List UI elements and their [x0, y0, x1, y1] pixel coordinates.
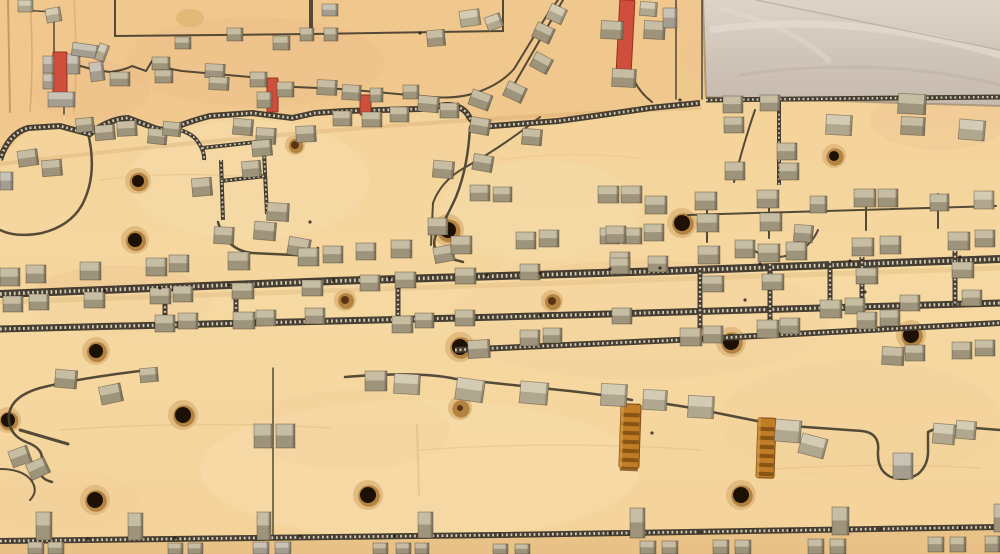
block-top-face — [735, 240, 755, 249]
ejection-block — [415, 313, 434, 328]
block-front-face — [780, 325, 800, 334]
block-top-face — [723, 96, 743, 104]
block-front-face — [962, 297, 982, 306]
ejection-block — [698, 246, 720, 264]
debris-speck — [418, 31, 421, 34]
ejection-block — [601, 20, 624, 39]
block-front-face — [950, 543, 966, 552]
ejection-block — [468, 339, 491, 358]
block-front-face — [470, 192, 490, 201]
block-front-face — [857, 319, 877, 329]
ejection-block — [152, 57, 170, 70]
block-top-face — [882, 346, 904, 356]
hole-center — [548, 297, 556, 305]
ejection-block — [757, 320, 779, 338]
block-top-face — [415, 313, 434, 320]
block-top-face — [440, 103, 459, 110]
ejection-block — [687, 395, 714, 418]
corrugated-rubber-strip — [756, 418, 776, 479]
debris-speck — [331, 278, 334, 281]
block-front-face — [606, 233, 626, 243]
block-front-face — [539, 237, 559, 247]
block-front-face — [276, 434, 295, 448]
block-top-face — [365, 371, 387, 381]
hole-center — [89, 344, 103, 358]
block-front-face — [493, 193, 512, 202]
block-front-face — [543, 334, 562, 343]
ejection-block — [952, 342, 972, 359]
ejection-block — [958, 119, 986, 141]
block-top-face — [232, 283, 254, 291]
block-front-face — [735, 546, 751, 554]
ejection-block — [302, 280, 323, 296]
ejection-block — [48, 542, 64, 554]
block-front-face — [724, 124, 744, 133]
block-top-face — [276, 424, 295, 436]
block-top-face — [391, 240, 412, 249]
block-top-face — [644, 224, 664, 232]
debris-speck — [173, 536, 176, 539]
block-front-face — [520, 337, 540, 346]
ejection-block — [975, 230, 995, 247]
block-top-face — [857, 312, 877, 320]
block-top-face — [680, 328, 702, 337]
block-top-face — [878, 189, 898, 198]
ejection-block — [0, 268, 20, 286]
block-top-face — [451, 236, 472, 245]
block-top-face — [901, 116, 925, 126]
ejection-block — [417, 95, 439, 113]
debris-speck — [538, 313, 541, 316]
block-top-face — [698, 246, 720, 255]
block-front-face — [360, 282, 380, 291]
block-top-face — [713, 540, 729, 547]
block-front-face — [695, 200, 717, 210]
block-top-face — [455, 268, 476, 276]
block-front-face — [415, 319, 434, 328]
ejection-block — [994, 504, 1000, 532]
ejection-block — [793, 224, 813, 243]
ejection-block — [856, 268, 878, 284]
block-front-face — [852, 246, 874, 256]
block-top-face — [757, 320, 779, 329]
drill-hole — [667, 208, 697, 238]
ejection-block — [253, 542, 269, 554]
ejection-block — [725, 162, 745, 180]
ejection-block — [455, 377, 486, 403]
block-top-face — [392, 316, 413, 324]
block-top-face — [760, 95, 780, 103]
block-front-face — [703, 333, 723, 343]
ejection-block — [395, 272, 416, 288]
ejection-block — [600, 383, 627, 406]
block-front-face — [735, 248, 755, 258]
block-top-face — [48, 542, 64, 548]
corrugation-ridge — [757, 472, 773, 477]
ejection-block — [360, 275, 380, 291]
ejection-block — [724, 117, 744, 133]
ejection-block — [897, 93, 926, 114]
block-top-face — [28, 542, 44, 548]
block-top-face — [516, 232, 536, 240]
die-forme-photo — [0, 0, 1000, 554]
drill-hole — [121, 226, 149, 254]
debris-speck — [958, 526, 961, 529]
ejection-block — [644, 20, 666, 39]
block-front-face — [723, 103, 743, 113]
ejection-block — [640, 541, 656, 554]
block-top-face — [214, 226, 234, 235]
block-front-face — [277, 88, 294, 97]
block-front-face — [640, 546, 656, 554]
ejection-block — [882, 346, 905, 365]
ejection-block — [680, 328, 702, 346]
block-front-face — [356, 250, 376, 260]
ejection-block — [760, 213, 782, 231]
block-top-face — [758, 244, 780, 253]
block-top-face — [735, 540, 751, 547]
ejection-block — [878, 189, 898, 207]
ejection-block — [80, 262, 101, 280]
ejection-block — [43, 74, 54, 89]
ejection-block — [520, 264, 540, 280]
ejection-block — [932, 423, 956, 445]
block-top-face — [948, 232, 970, 241]
block-top-face — [777, 143, 797, 151]
block-top-face — [428, 218, 448, 226]
block-top-face — [643, 389, 667, 400]
block-top-face — [808, 539, 824, 546]
block-front-face — [48, 98, 75, 107]
block-front-face — [952, 269, 974, 278]
ejection-block — [974, 191, 994, 209]
ejection-block — [648, 256, 668, 272]
block-front-face — [455, 317, 475, 326]
block-top-face — [0, 268, 20, 277]
block-front-face — [28, 547, 44, 554]
block-top-face — [296, 125, 316, 134]
block-front-face — [645, 204, 667, 214]
block-front-face — [84, 299, 105, 308]
ejection-block — [702, 276, 724, 292]
block-front-face — [3, 303, 23, 312]
block-top-face — [273, 36, 290, 43]
block-top-face — [493, 187, 512, 194]
block-top-face — [621, 186, 642, 194]
ejection-block — [273, 36, 290, 50]
drill-hole — [541, 290, 563, 312]
block-top-face — [598, 186, 619, 194]
block-top-face — [305, 308, 325, 316]
ejection-block — [392, 316, 413, 333]
ejection-block — [276, 424, 295, 448]
debris-speck — [608, 267, 611, 270]
ejection-block — [639, 1, 657, 16]
block-top-face — [695, 192, 717, 201]
block-front-face — [662, 546, 678, 554]
block-front-face — [390, 113, 409, 122]
ejection-block — [455, 268, 476, 284]
ejection-block — [28, 542, 44, 554]
ejection-block — [253, 221, 276, 241]
corrugation-ridge — [622, 413, 640, 418]
debris-speck — [678, 98, 681, 101]
block-top-face — [975, 230, 995, 238]
ejection-block — [428, 218, 448, 235]
corrugation-ridge — [620, 449, 638, 454]
block-top-face — [520, 330, 540, 338]
block-front-face — [698, 254, 720, 264]
ejection-block — [298, 248, 319, 266]
ejection-block — [48, 92, 75, 107]
block-front-face — [830, 545, 846, 554]
ejection-block — [188, 543, 203, 554]
block-front-face — [854, 197, 876, 207]
block-front-face — [856, 275, 878, 284]
ejection-block — [356, 243, 376, 260]
block-front-face — [26, 273, 46, 283]
ejection-block — [786, 242, 807, 260]
ejection-block — [209, 76, 230, 90]
block-top-face — [155, 70, 173, 76]
plywood-board — [676, 0, 703, 100]
ejection-block — [173, 286, 193, 302]
block-front-face — [516, 239, 536, 249]
block-top-face — [394, 373, 420, 384]
block-top-face — [856, 268, 878, 276]
ejection-block — [214, 226, 235, 244]
ejection-block — [45, 7, 62, 23]
ejection-block — [67, 54, 80, 74]
ejection-block — [275, 542, 291, 554]
debris-speck — [863, 290, 866, 293]
block-top-face — [169, 255, 189, 263]
block-top-face — [390, 107, 409, 114]
ejection-block — [162, 121, 181, 137]
block-top-face — [29, 294, 49, 302]
ejection-block — [880, 236, 901, 254]
debris-speck — [878, 527, 881, 530]
block-top-face — [601, 383, 628, 395]
ejection-block — [128, 513, 143, 540]
ejection-block — [493, 544, 508, 554]
block-top-face — [543, 328, 562, 335]
ejection-block — [3, 296, 23, 312]
block-front-face — [779, 170, 799, 180]
block-front-face — [391, 248, 412, 258]
block-front-face — [451, 244, 472, 254]
ejection-block — [26, 265, 46, 283]
block-top-face — [852, 238, 874, 247]
ejection-block — [469, 116, 491, 135]
hole-center — [175, 407, 191, 423]
block-top-face — [601, 20, 623, 30]
ejection-block — [150, 288, 171, 304]
block-front-face — [880, 244, 901, 254]
block-top-face — [880, 236, 901, 245]
block-front-face — [680, 336, 702, 346]
block-top-face — [277, 82, 294, 89]
block-top-face — [267, 202, 289, 212]
ejection-block — [393, 373, 420, 394]
block-top-face — [178, 313, 198, 321]
corrugation-ridge — [758, 454, 774, 459]
block-front-face — [621, 193, 642, 203]
hole-center — [829, 151, 839, 161]
debris-speck — [958, 255, 961, 258]
corrugation-ridge — [621, 422, 639, 427]
block-top-face — [470, 185, 490, 193]
block-front-face — [232, 290, 254, 299]
block-top-face — [893, 453, 913, 465]
block-front-face — [155, 75, 173, 83]
block-top-face — [725, 162, 745, 171]
ejection-block — [493, 187, 512, 202]
ejection-block — [952, 262, 974, 278]
block-top-face — [854, 189, 876, 198]
hole-center — [733, 487, 749, 503]
ejection-block — [110, 72, 130, 86]
block-front-face — [110, 78, 130, 86]
ejection-block — [645, 196, 667, 214]
block-front-face — [808, 545, 824, 554]
hole-center — [457, 405, 463, 411]
block-front-face — [305, 315, 325, 324]
ejection-block — [516, 232, 536, 249]
ejection-block — [390, 107, 409, 122]
block-front-face — [930, 201, 949, 211]
block-top-face — [84, 292, 105, 300]
block-front-face — [994, 516, 1000, 532]
block-front-face — [786, 250, 807, 260]
ejection-block — [323, 246, 343, 263]
block-front-face — [80, 270, 101, 280]
ejection-block — [227, 28, 243, 41]
ejection-block — [697, 214, 719, 232]
block-top-face — [688, 395, 715, 407]
ejection-block — [94, 124, 115, 141]
ejection-block — [852, 238, 874, 256]
ejection-block — [205, 63, 226, 78]
ejection-block — [975, 340, 995, 356]
block-top-face — [900, 295, 920, 303]
debris-speck — [298, 534, 301, 537]
ejection-block — [472, 153, 494, 172]
ejection-block — [36, 512, 52, 540]
block-front-face — [392, 323, 413, 333]
ejection-block — [175, 37, 191, 49]
block-front-face — [29, 301, 49, 310]
ejection-block — [324, 28, 338, 41]
debris-speck — [650, 431, 653, 434]
ejection-block — [774, 419, 802, 443]
block-front-face — [333, 117, 352, 126]
corrugation-ridge — [757, 463, 773, 468]
ejection-block — [880, 310, 900, 326]
block-top-face — [610, 258, 630, 266]
drill-hole — [353, 480, 383, 510]
die-board-scene — [0, 0, 1000, 554]
block-front-face — [948, 240, 970, 250]
block-top-face — [254, 424, 273, 436]
block-front-face — [0, 276, 20, 286]
block-front-face — [256, 317, 276, 326]
ejection-block — [440, 103, 459, 118]
ejection-block — [962, 290, 982, 306]
debris-speck — [698, 530, 701, 533]
concrete-floor — [703, 0, 1000, 106]
block-front-face — [612, 315, 632, 324]
block-top-face — [762, 274, 784, 282]
block-top-face — [702, 276, 724, 284]
drill-hole — [125, 168, 151, 194]
ejection-block — [257, 512, 271, 540]
ejection-block — [75, 117, 94, 133]
block-front-face — [648, 263, 668, 272]
ejection-block — [342, 85, 362, 101]
ejection-block — [139, 367, 158, 383]
ejection-block — [333, 111, 352, 126]
block-top-face — [975, 340, 995, 348]
ejection-block — [900, 295, 920, 311]
hole-center — [128, 233, 142, 247]
ejection-block — [905, 345, 925, 361]
ejection-block — [663, 8, 677, 28]
block-front-face — [520, 271, 540, 280]
block-front-face — [760, 102, 780, 111]
corrugation-ridge — [758, 445, 774, 450]
corrugation-ridge — [620, 467, 638, 472]
ejection-block — [948, 232, 970, 250]
block-front-face — [155, 322, 175, 332]
ejection-block — [365, 371, 387, 391]
ejection-block — [598, 186, 619, 203]
ejection-block — [277, 82, 294, 97]
ejection-block — [146, 258, 167, 276]
ejection-block — [893, 453, 913, 479]
ejection-block — [543, 328, 562, 343]
block-top-face — [256, 310, 276, 318]
block-top-face — [994, 504, 1000, 517]
block-front-face — [273, 42, 290, 50]
block-top-face — [333, 111, 352, 118]
block-front-face — [455, 275, 476, 284]
block-front-face — [928, 543, 944, 552]
block-front-face — [233, 319, 255, 329]
block-front-face — [298, 256, 319, 266]
block-top-face — [880, 310, 900, 318]
debris-speck — [848, 259, 851, 262]
block-top-face — [362, 112, 382, 119]
ejection-block — [254, 424, 273, 448]
ejection-block — [43, 56, 54, 73]
ejection-block — [89, 61, 106, 82]
debris-speck — [743, 298, 746, 301]
ejection-block — [232, 283, 254, 299]
block-top-face — [173, 286, 193, 294]
block-front-face — [395, 279, 416, 288]
block-front-face — [697, 222, 719, 232]
block-front-face — [900, 302, 920, 311]
ejection-block — [612, 68, 637, 87]
drill-hole — [82, 337, 110, 365]
block-top-face — [779, 163, 799, 171]
ejection-block — [455, 310, 475, 326]
debris-speck — [498, 533, 501, 536]
ejection-block — [29, 294, 49, 310]
hole-center — [360, 487, 376, 503]
block-top-face — [905, 345, 925, 353]
